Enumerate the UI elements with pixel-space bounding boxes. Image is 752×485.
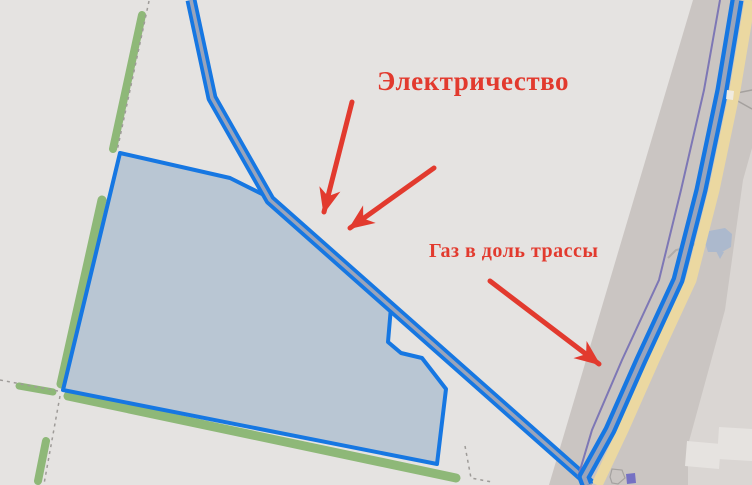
- light-block: [717, 427, 752, 461]
- electricity-arrow-left: [324, 102, 352, 212]
- map-canvas: [0, 0, 752, 485]
- gas-arrow: [490, 281, 599, 364]
- building-indigo: [626, 473, 636, 484]
- map-screenshot: Электричество Газ в доль трассы: [0, 0, 752, 485]
- boundary-dashes: [465, 446, 492, 482]
- electricity-arrow-right: [350, 168, 434, 228]
- green-strip-north: [113, 15, 142, 149]
- yellow-band-gap: [726, 90, 734, 100]
- gas-label: Газ в доль трассы: [429, 240, 599, 263]
- boundary-dashes: [117, 1, 149, 151]
- green-strip-southwest: [38, 441, 46, 481]
- light-block: [685, 441, 721, 469]
- electricity-label: Электричество: [377, 66, 569, 97]
- map-features-layer: [0, 0, 752, 485]
